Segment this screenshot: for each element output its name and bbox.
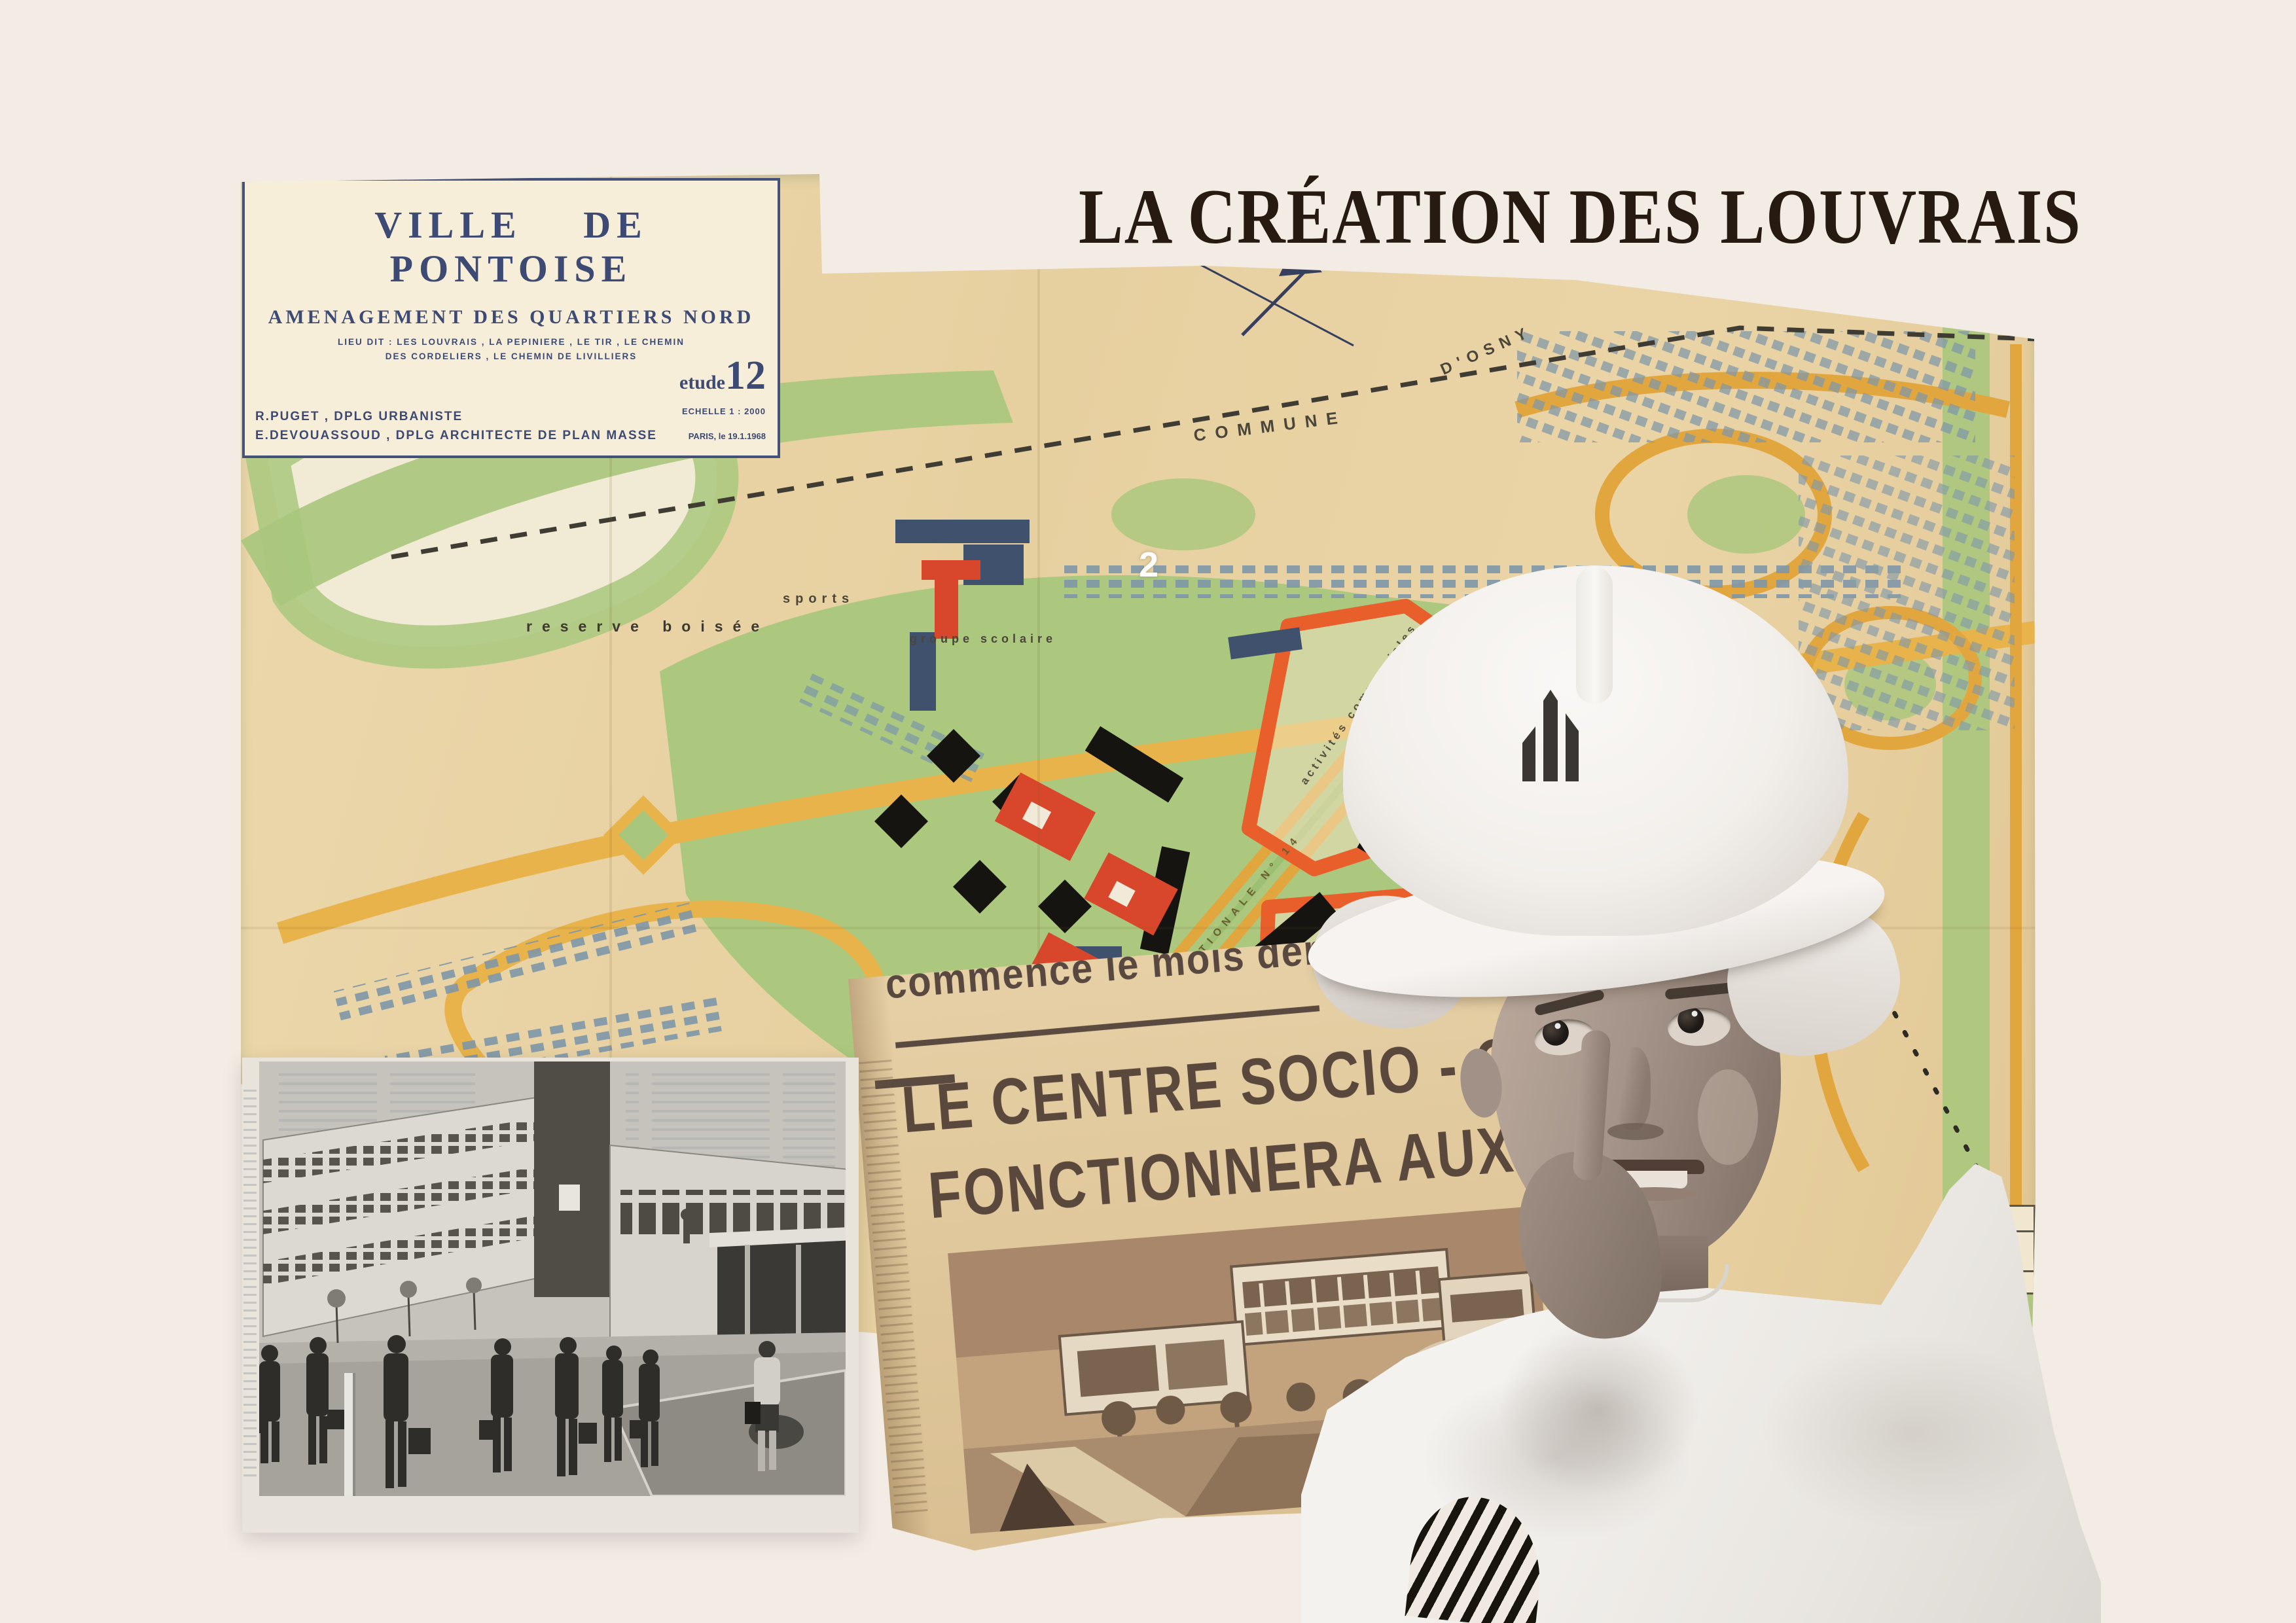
map-lieu-dit-line1: LIEU DIT : LES LOUVRAIS , LA PEPINIERE ,… <box>245 335 778 349</box>
boy-nostrils <box>1607 1123 1664 1140</box>
map-label-sports: sports <box>783 592 854 607</box>
map-credit-urbaniste: R.PUGET , DPLG URBANISTE <box>255 408 657 427</box>
map-label-groupe-scolaire: groupe scolaire <box>910 632 1056 646</box>
helmet-ridge <box>1576 567 1613 704</box>
boy-nose <box>1614 1047 1651 1130</box>
shirt-fold <box>1759 1334 2060 1530</box>
map-cartouche: VILLE DE PONTOISE AMENAGEMENT DES QUARTI… <box>242 178 780 458</box>
school-photo-drawing <box>259 1061 846 1496</box>
school-photo <box>259 1061 846 1496</box>
page-margin-text <box>243 1084 257 1476</box>
map-etude-label: etude <box>679 372 725 393</box>
page-title-text: LA CRÉATION DES LOUVRAIS <box>1079 171 2081 262</box>
boy-with-hardhat <box>1301 562 2101 1623</box>
hand-shadow <box>1498 1321 1700 1497</box>
three-bars-logo-icon <box>1522 690 1585 781</box>
map-city-title: VILLE DE PONTOISE <box>245 203 778 291</box>
map-etude: etude12 <box>679 353 766 399</box>
map-label-reserve-boisee: reserve boisée <box>526 618 769 635</box>
map-sector-number: 2 <box>1139 544 1158 585</box>
map-credit-architecte: E.DEVOUASSOUD , DPLG ARCHITECTE DE PLAN … <box>255 427 657 446</box>
white-pole <box>344 1373 355 1496</box>
boy-cheek-highlight <box>1698 1069 1758 1165</box>
school-photo-page <box>242 1058 859 1533</box>
poster-canvas: LA CRÉATION DES LOUVRAIS <box>0 0 2296 1623</box>
page-title: LA CRÉATION DES LOUVRAIS <box>1079 171 2100 250</box>
newspaper-rule <box>895 1005 1319 1048</box>
map-place-date: PARIS, le 19.1.1968 <box>689 431 766 441</box>
map-subtitle: AMENAGEMENT DES QUARTIERS NORD <box>245 306 778 329</box>
map-echelle: ECHELLE 1 : 2000 <box>682 406 766 416</box>
boy-pupil <box>1677 1007 1705 1035</box>
map-etude-number: 12 <box>725 353 766 398</box>
map-credits: R.PUGET , DPLG URBANISTE E.DEVOUASSOUD ,… <box>255 408 657 445</box>
